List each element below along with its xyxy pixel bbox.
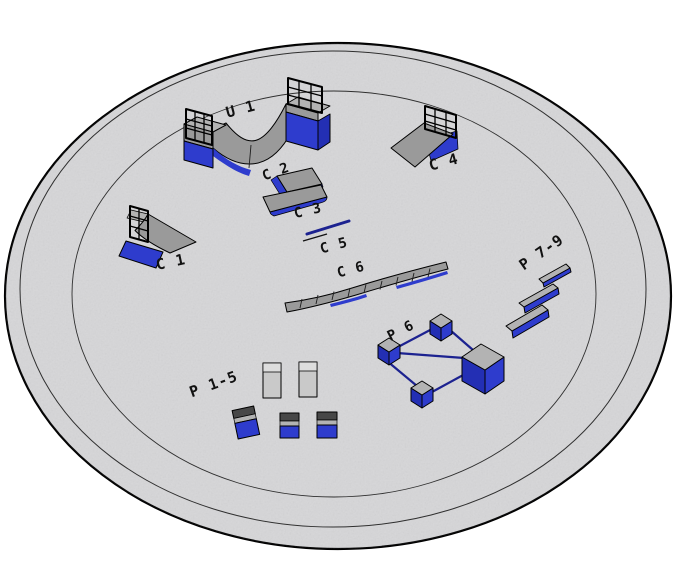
scene-svg: U 1 C 1 C 2 C 3 C 4 C 5 C 6 P 1-5 P 6 P … xyxy=(0,0,680,579)
p4-cube xyxy=(280,413,299,438)
p2-tall-box xyxy=(299,362,317,397)
p5-cube xyxy=(317,412,337,438)
skatepark-layout-render: U 1 C 1 C 2 C 3 C 4 C 5 C 6 P 1-5 P 6 P … xyxy=(0,0,680,579)
p1-tall-box xyxy=(263,363,281,398)
